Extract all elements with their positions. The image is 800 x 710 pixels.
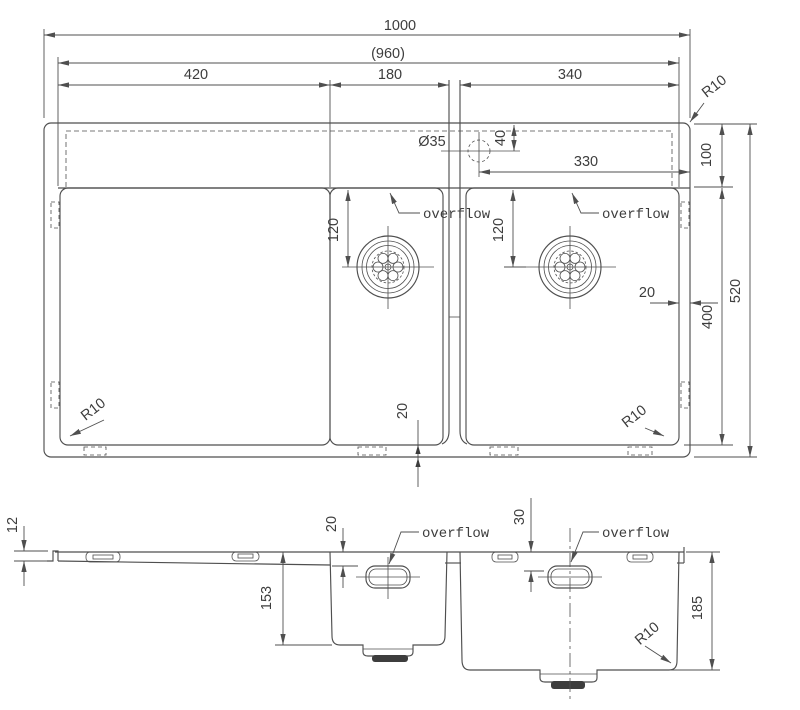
- dim-large-bowl-overflow-offset: 30: [512, 498, 544, 592]
- dim-large-bowl-width-label: 340: [558, 67, 582, 83]
- small-bowl-overflow-section-label: overflow: [422, 526, 490, 542]
- small-bowl-section: [330, 552, 447, 656]
- large-bowl-drain-body: [551, 681, 585, 689]
- bowl-divider: [442, 80, 467, 444]
- large-bowl-section: [460, 552, 679, 682]
- dim-corner-radius-top-right: R10: [690, 72, 730, 122]
- large-bowl-overflow-section-label: overflow: [602, 526, 670, 542]
- top-view: 1000 (960) 420 180 340 R10 Ø35 40: [44, 18, 757, 487]
- dim-deck-depth: 100: [694, 124, 757, 187]
- large-bowl-drain-offset-label: 120: [491, 218, 507, 242]
- radius-bottom-left-label: R10: [78, 395, 109, 424]
- drawing-page: 1000 (960) 420 180 340 R10 Ø35 40: [0, 0, 800, 710]
- dim-bowl-depth-plan: 400: [684, 188, 733, 445]
- section-view: 12 20 overflow 30 overflow 153: [5, 498, 720, 703]
- large-bowl-overflow-offset-label: 30: [512, 509, 528, 525]
- bowl-depth-plan-label: 400: [700, 305, 716, 329]
- small-bowl-depth-label: 153: [259, 586, 275, 610]
- section-clip-tabs: [86, 552, 653, 562]
- dim-small-bowl-width-label: 180: [378, 67, 402, 83]
- dim-overall-depth: 520: [694, 124, 757, 457]
- mounting-clips: [51, 202, 689, 455]
- rim-height-label: 12: [5, 517, 21, 533]
- small-bowl-overflow-hole: [356, 557, 420, 599]
- small-bowl-overflow-label: overflow: [423, 207, 491, 223]
- radius-bottom-right-label: R10: [619, 402, 650, 431]
- dim-inner-width-label: (960): [371, 46, 405, 62]
- dim-faucet-hole: Ø35 40 330: [418, 125, 690, 178]
- dim-overall-width-label: 1000: [384, 18, 416, 34]
- dim-corner-radius-bottom-left: R10: [70, 395, 109, 436]
- bowl-corner-radius-label: R10: [632, 619, 663, 648]
- faucet-to-edge-label: 330: [574, 154, 598, 170]
- dim-corner-radius-bottom-right: R10: [619, 402, 664, 436]
- deck-depth-label: 100: [699, 143, 715, 167]
- large-bowl-drain: [524, 226, 616, 309]
- overflow-callout-small-bowl-section: overflow: [389, 526, 490, 564]
- dim-bowl-corner-radius: R10: [632, 619, 671, 663]
- faucet-hole-diameter-label: Ø35: [418, 134, 445, 150]
- dim-small-bowl-depth: 153: [259, 552, 332, 645]
- radius-top-right-label: R10: [699, 72, 730, 101]
- small-bowl-drain-offset-label: 120: [326, 218, 342, 242]
- dim-drain-offsets: 120 120: [326, 190, 526, 267]
- overflow-callout-large-bowl: overflow: [572, 193, 670, 223]
- large-bowl-depth-label: 185: [690, 596, 706, 620]
- dim-overall-width: 1000: [44, 18, 690, 118]
- overflow-callout-small-bowl: overflow: [390, 193, 491, 223]
- dim-rim-height: 12: [5, 517, 48, 586]
- edge-gap-right-label: 20: [639, 285, 655, 301]
- small-bowl-drain: [342, 226, 434, 309]
- dim-large-bowl-depth: 185: [600, 552, 720, 670]
- small-bowl-overflow-offset-label: 20: [324, 516, 340, 532]
- overall-depth-label: 520: [728, 279, 744, 303]
- small-bowl-plan: [330, 188, 443, 445]
- large-bowl-overflow-label: overflow: [602, 207, 670, 223]
- dim-drainboard-width-label: 420: [184, 67, 208, 83]
- faucet-hole-offset-label: 40: [493, 130, 509, 146]
- overflow-callout-large-bowl-section: overflow: [571, 526, 670, 562]
- edge-gap-bottom-label: 20: [395, 403, 411, 419]
- technical-drawing: 1000 (960) 420 180 340 R10 Ø35 40: [0, 0, 800, 710]
- small-bowl-drain-body: [372, 655, 408, 662]
